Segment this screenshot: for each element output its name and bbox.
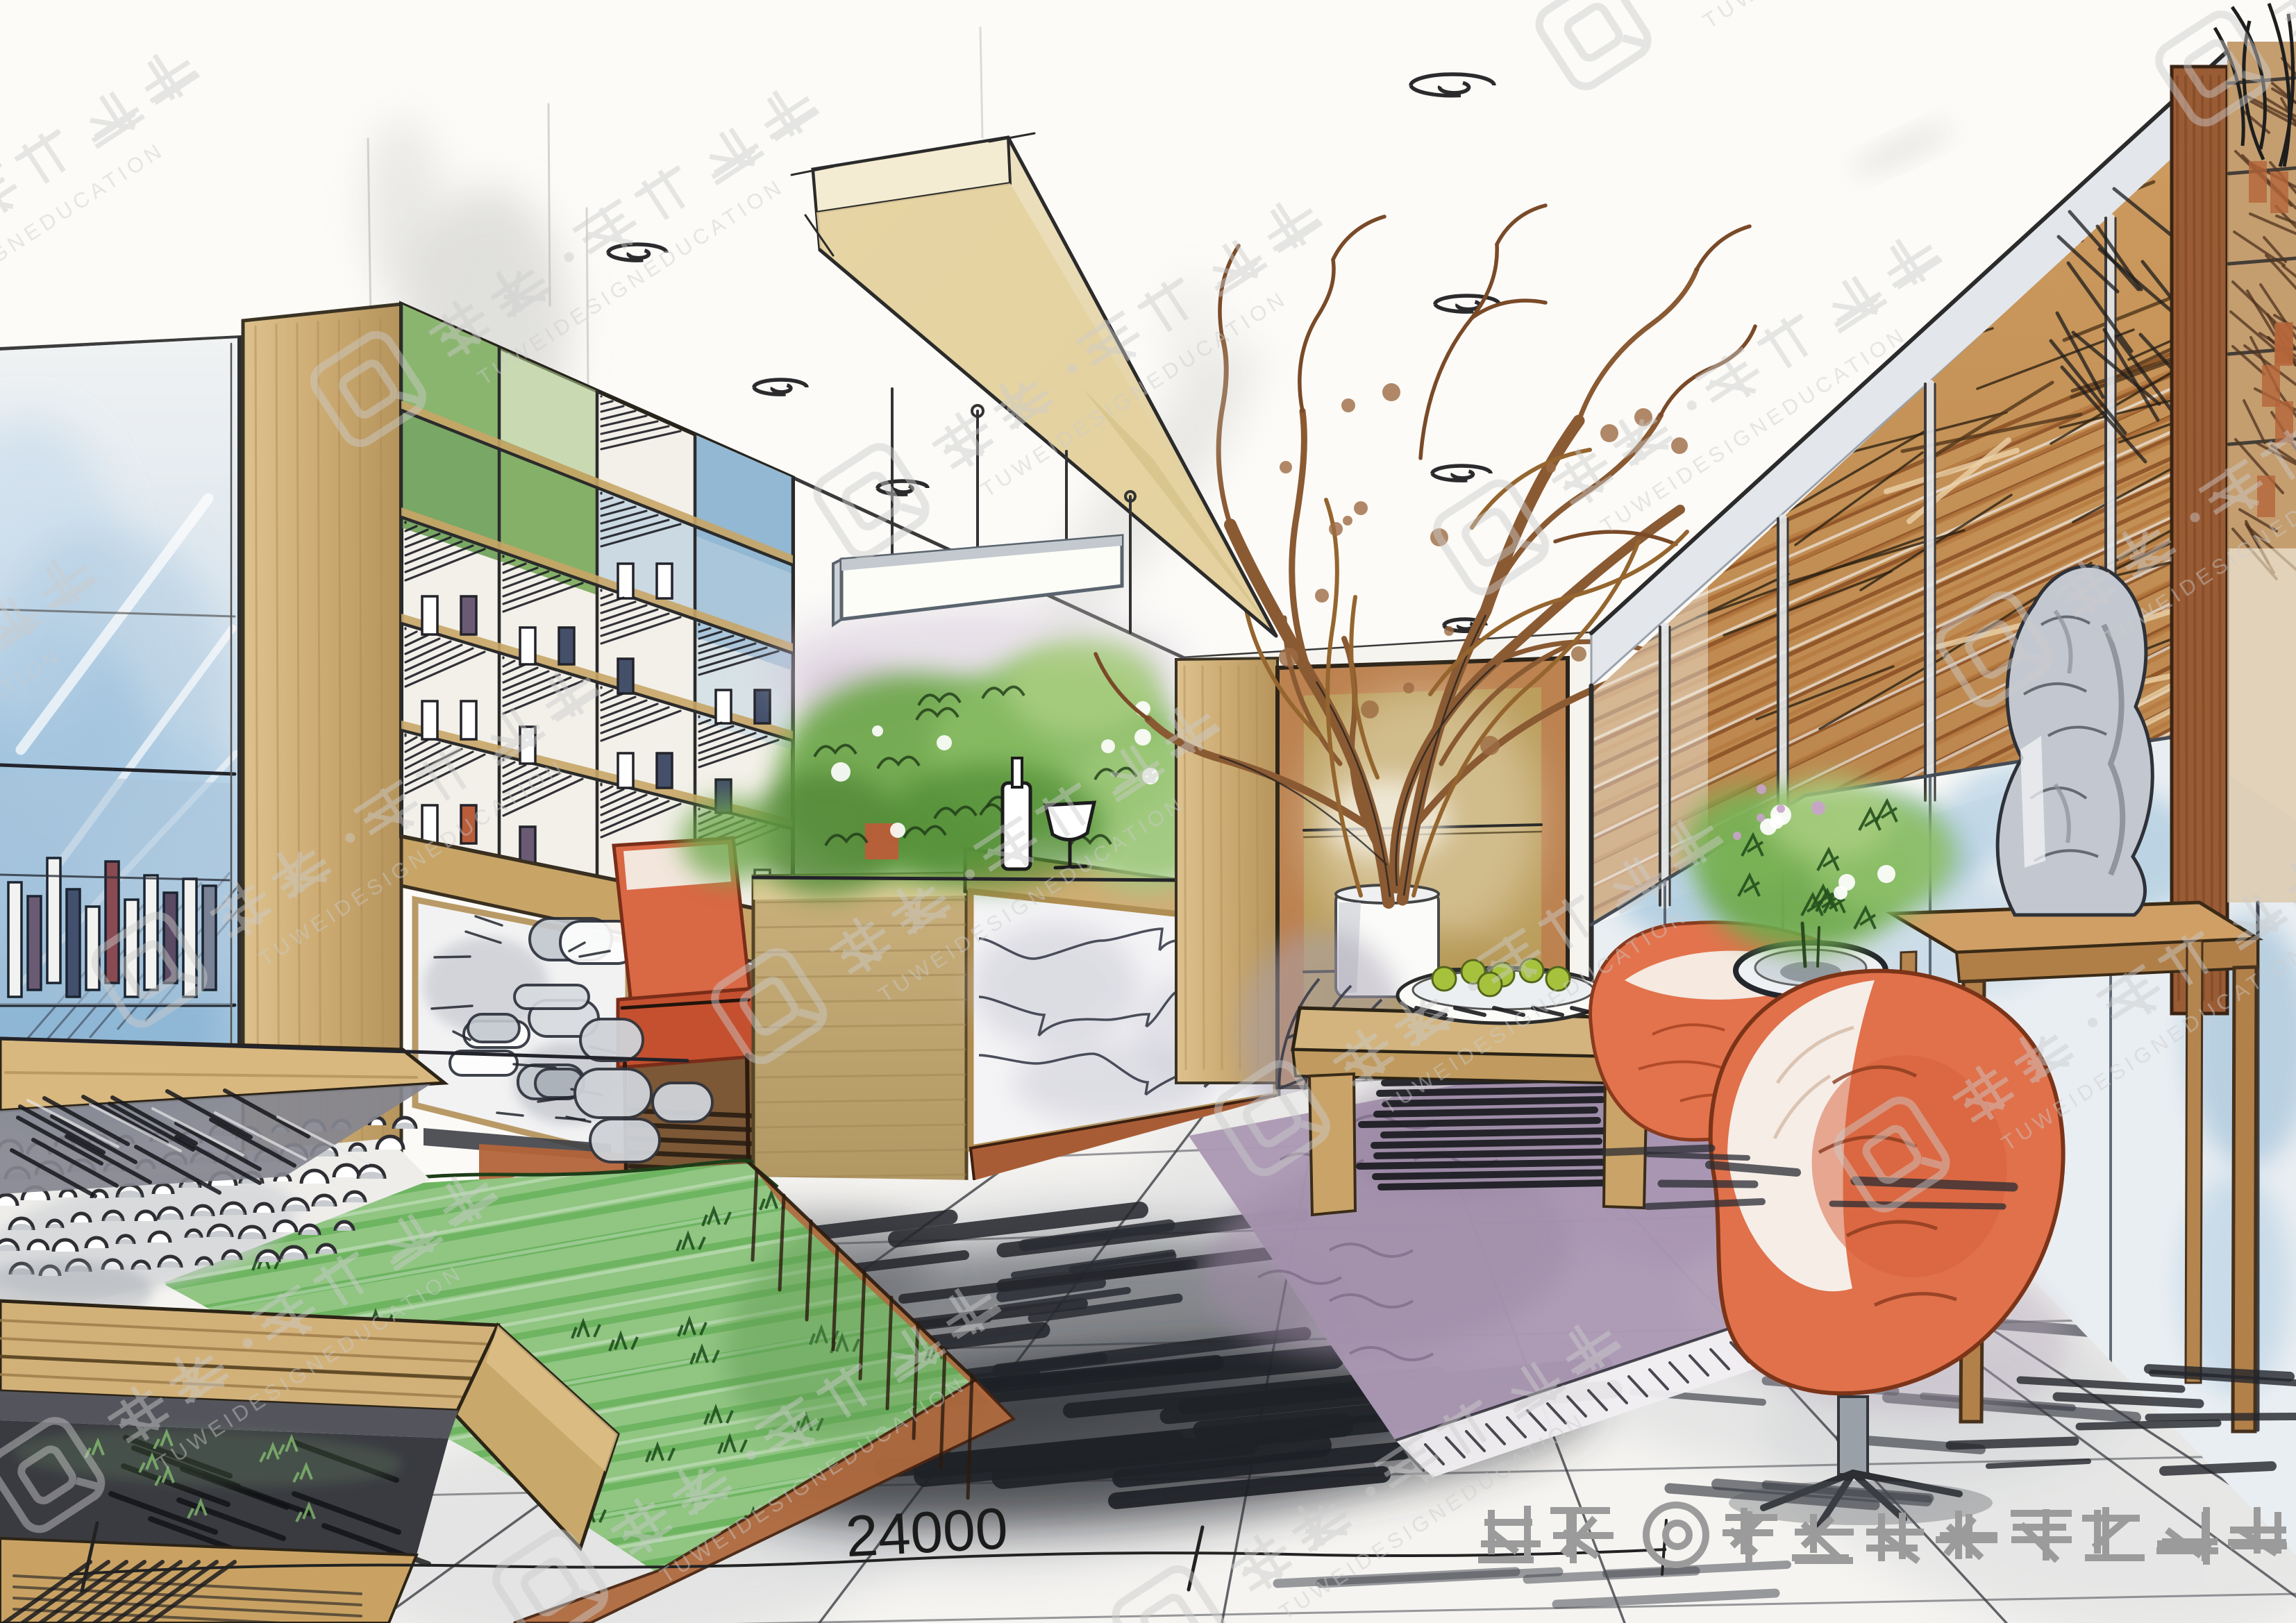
svg-text:24000: 24000 [844,1495,1009,1569]
